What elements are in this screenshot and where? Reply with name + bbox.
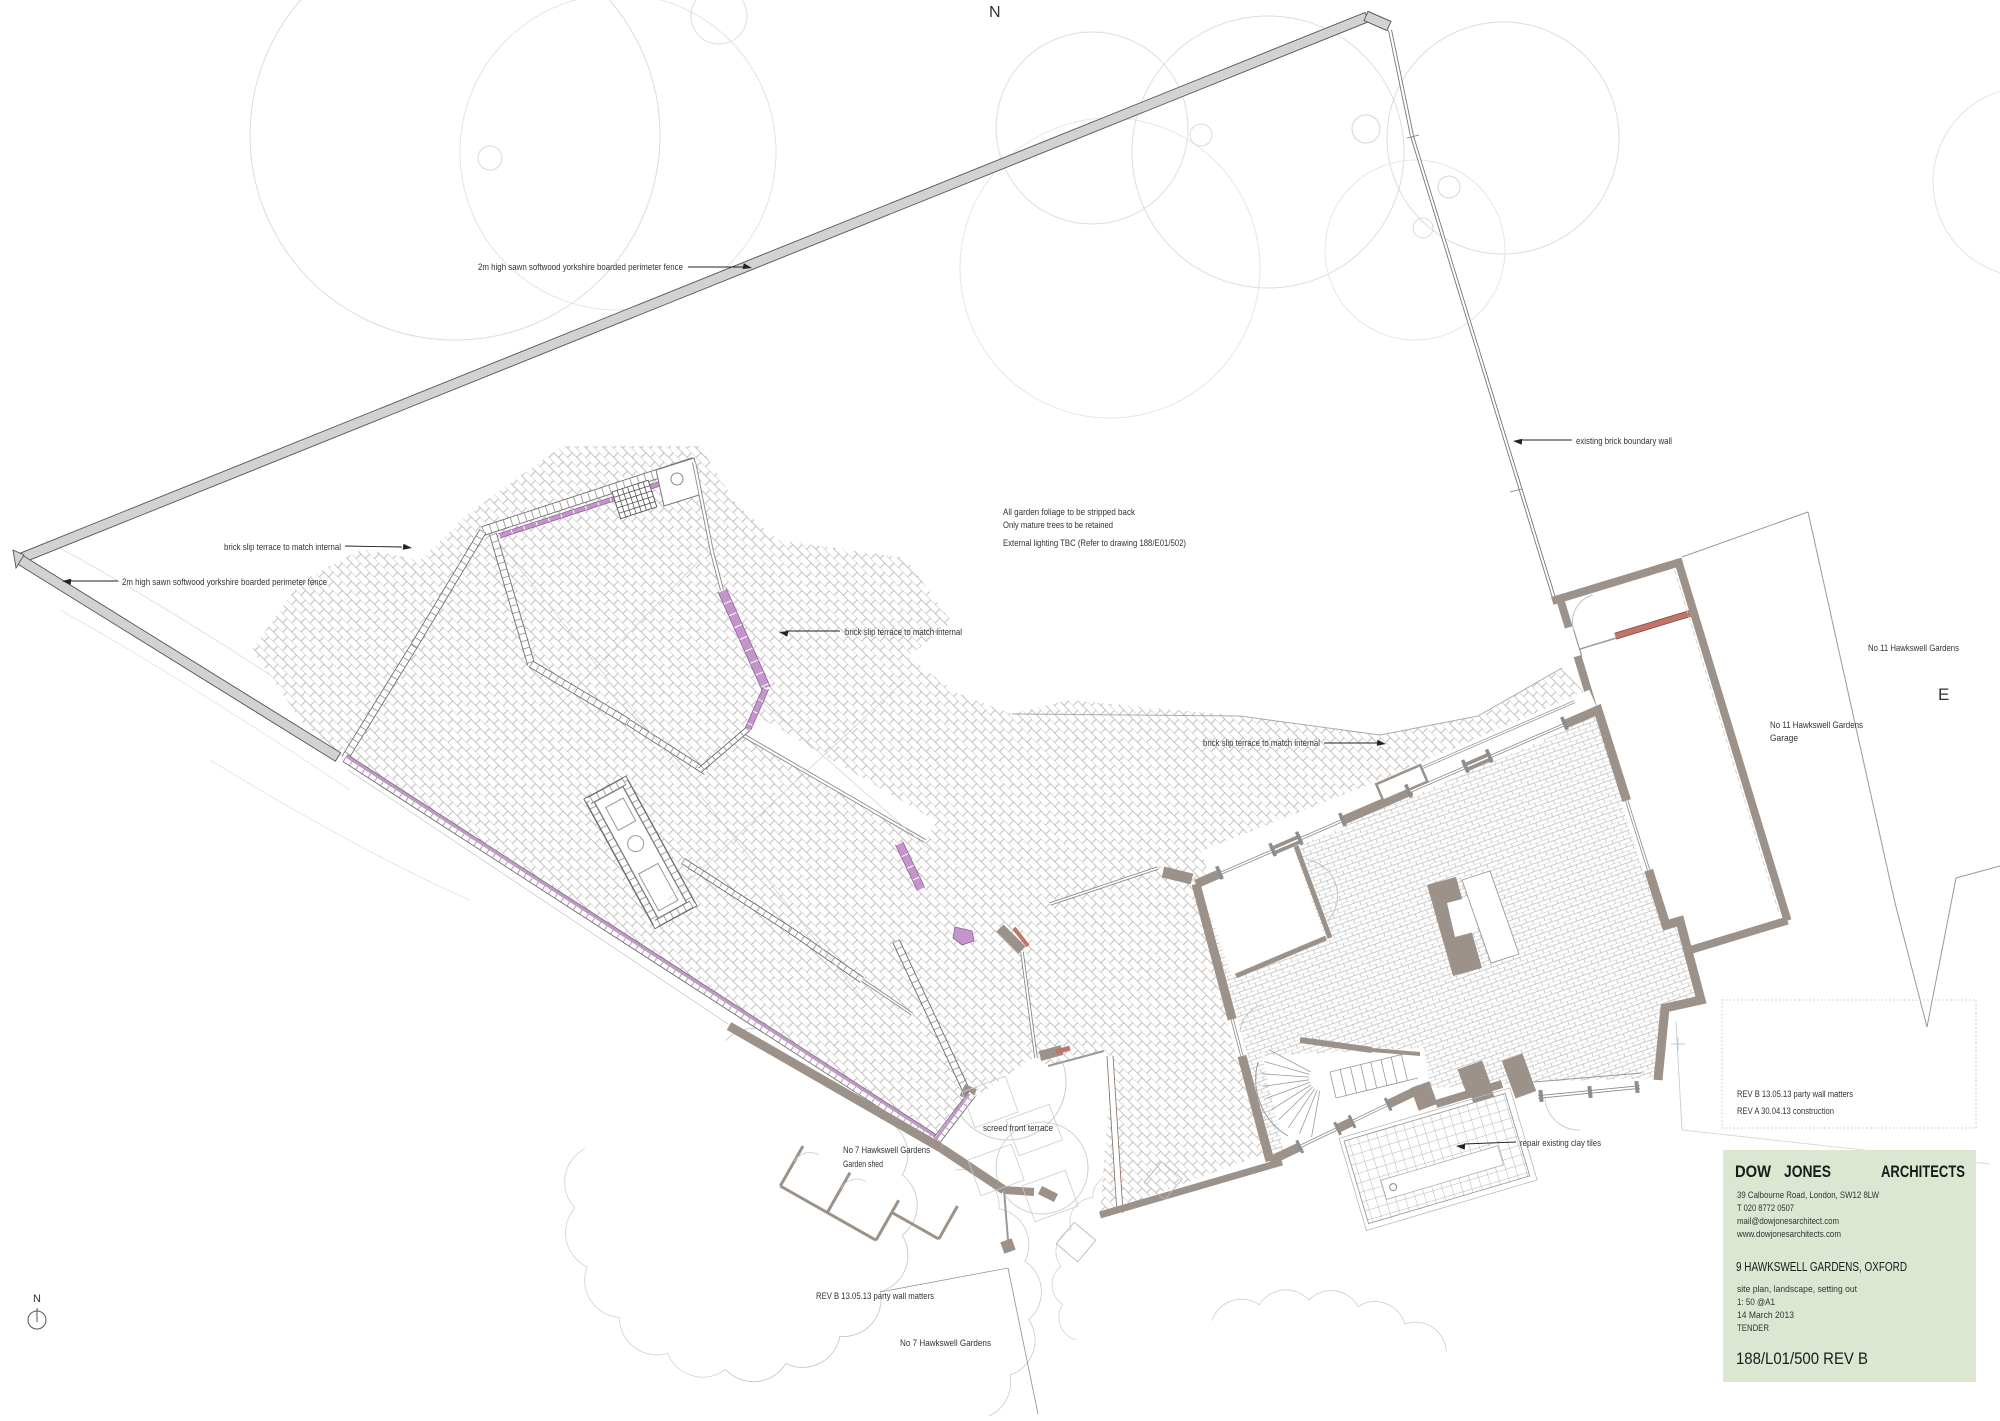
svg-text:repair existing clay tiles: repair existing clay tiles [1520, 1138, 1601, 1149]
svg-text:Only mature trees to be retain: Only mature trees to be retained [1003, 520, 1113, 531]
svg-text:REV B 13.05.13 party wall matt: REV B 13.05.13 party wall matters [816, 1291, 934, 1302]
svg-text:brick slip terrace to match in: brick slip terrace to match internal [1203, 738, 1320, 749]
svg-text:screed front terrace: screed front terrace [983, 1123, 1053, 1134]
svg-text:N: N [989, 4, 1001, 21]
svg-text:Garden shed: Garden shed [843, 1159, 883, 1170]
svg-text:All garden foliage to be strip: All garden foliage to be stripped back [1003, 507, 1135, 518]
svg-text:REV A 30.04.13 construction: REV A 30.04.13 construction [1737, 1106, 1834, 1117]
svg-text:188/L01/500 REV B: 188/L01/500 REV B [1736, 1349, 1868, 1368]
svg-text:No 11 Hawkswell Gardens: No 11 Hawkswell Gardens [1770, 720, 1863, 731]
svg-text:2m high sawn softwood yorkshir: 2m high sawn softwood yorkshire boarded … [122, 577, 327, 588]
svg-text:E: E [1938, 685, 1949, 704]
svg-text:brick slip terrace to match in: brick slip terrace to match internal [845, 627, 962, 638]
svg-text:2m high sawn softwood yorkshir: 2m high sawn softwood yorkshire boarded … [478, 262, 683, 273]
svg-text:No 11 Hawkswell Gardens: No 11 Hawkswell Gardens [1868, 643, 1959, 654]
svg-text:DOW: DOW [1735, 1163, 1771, 1181]
svg-text:existing brick boundary wall: existing brick boundary wall [1576, 436, 1672, 447]
svg-text:39 Calbourne Road, London, SW1: 39 Calbourne Road, London, SW12 8LW [1737, 1190, 1879, 1201]
svg-text:No 7 Hawkswell Gardens: No 7 Hawkswell Gardens [843, 1145, 930, 1156]
svg-text:mail@dowjonesarchitect.com: mail@dowjonesarchitect.com [1737, 1216, 1839, 1227]
svg-text:TENDER: TENDER [1737, 1323, 1769, 1334]
svg-text:1: 50 @A1: 1: 50 @A1 [1737, 1297, 1775, 1308]
svg-text:ARCHITECTS: ARCHITECTS [1881, 1163, 1965, 1181]
svg-text:JONES: JONES [1784, 1163, 1831, 1181]
svg-text:External lighting TBC (Refer t: External lighting TBC (Refer to drawing … [1003, 538, 1186, 549]
svg-text:site plan, landscape, setting: site plan, landscape, setting out [1737, 1284, 1857, 1295]
svg-text:T 020 8772 0507: T 020 8772 0507 [1737, 1203, 1794, 1214]
svg-text:9 HAWKSWELL GARDENS, OXFORD: 9 HAWKSWELL GARDENS, OXFORD [1736, 1260, 1907, 1274]
svg-text:No 7 Hawkswell Gardens: No 7 Hawkswell Gardens [900, 1338, 991, 1349]
svg-text:Garage: Garage [1770, 733, 1798, 744]
svg-text:REV B 13.05.13 party wall matt: REV B 13.05.13 party wall matters [1737, 1089, 1853, 1100]
svg-text:14 March 2013: 14 March 2013 [1737, 1310, 1794, 1321]
svg-text:brick slip terrace to match in: brick slip terrace to match internal [224, 542, 341, 553]
svg-text:www.dowjonesarchitects.com: www.dowjonesarchitects.com [1736, 1229, 1841, 1240]
svg-text:N: N [33, 1293, 41, 1305]
